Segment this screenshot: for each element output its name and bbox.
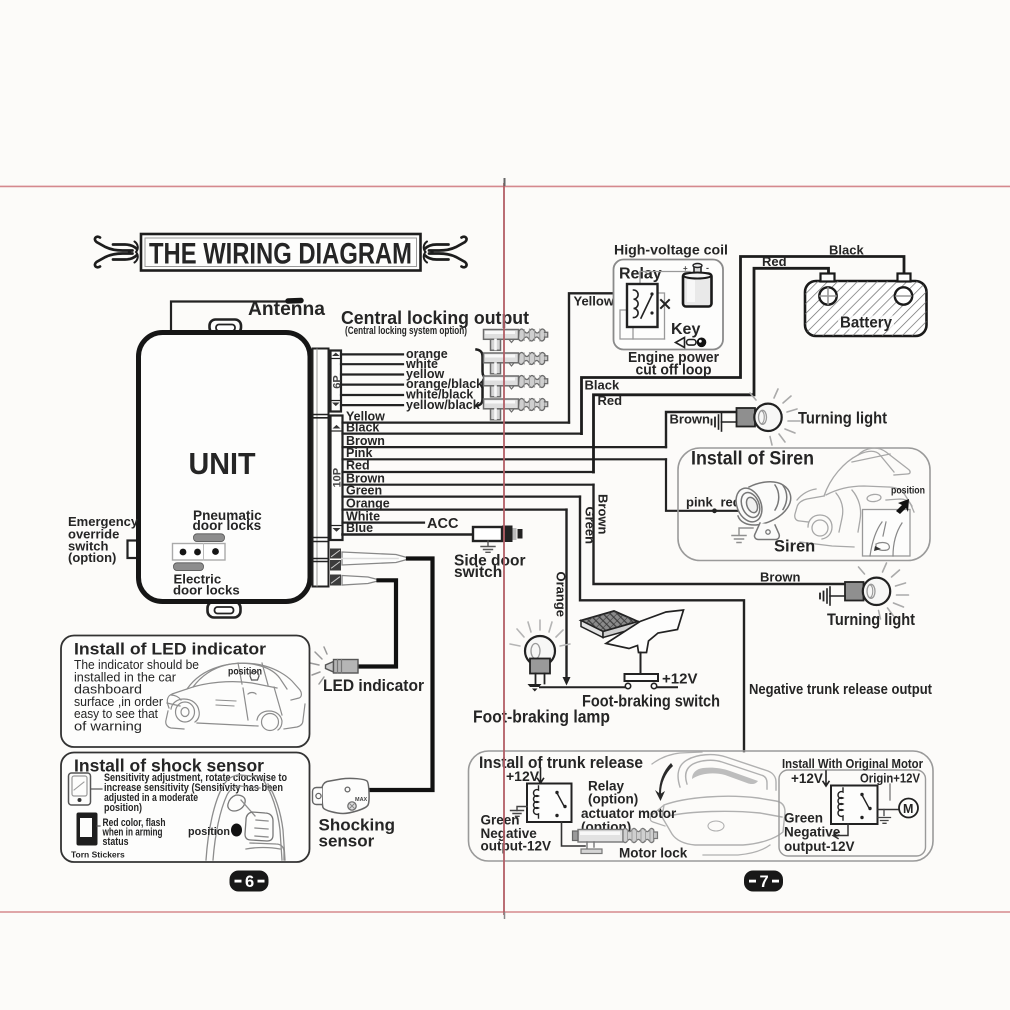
svg-text:Torn Stickers: Torn Stickers — [71, 850, 125, 860]
svg-text:switch: switch — [454, 564, 502, 581]
svg-text:output-12V: output-12V — [784, 839, 855, 854]
svg-text:ACC: ACC — [427, 516, 459, 532]
svg-text:yellow/black: yellow/black — [406, 398, 480, 412]
svg-text:Negative: Negative — [784, 825, 841, 840]
svg-text:Yellow: Yellow — [574, 294, 615, 309]
svg-text:Orange: Orange — [346, 496, 390, 510]
svg-text:Black: Black — [346, 420, 379, 434]
svg-text:7: 7 — [760, 873, 769, 891]
svg-text:UNIT: UNIT — [189, 446, 256, 481]
svg-text:(option): (option) — [588, 792, 638, 807]
svg-text:status: status — [103, 836, 129, 848]
svg-text:Install of Siren: Install of Siren — [691, 449, 814, 470]
svg-text:position: position — [188, 826, 230, 838]
svg-text:High-voltage coil: High-voltage coil — [614, 243, 728, 258]
svg-text:position: position — [891, 486, 925, 497]
svg-text:Blue: Blue — [346, 521, 373, 535]
svg-text:6: 6 — [245, 873, 254, 891]
svg-text:Motor lock: Motor lock — [619, 846, 688, 861]
svg-text:(Central locking system option: (Central locking system option) — [345, 325, 467, 337]
svg-text:Key: Key — [671, 321, 700, 338]
svg-text:sensor: sensor — [319, 832, 375, 851]
svg-text:Green: Green — [583, 507, 598, 545]
svg-text:Green: Green — [784, 811, 823, 826]
svg-text:(option): (option) — [68, 550, 116, 565]
svg-text:output-12V: output-12V — [481, 839, 552, 854]
svg-text:door locks: door locks — [193, 518, 262, 533]
svg-text:Black: Black — [585, 378, 620, 393]
svg-text:-: - — [706, 263, 709, 273]
svg-text:Red: Red — [598, 393, 623, 408]
svg-text:Antenna: Antenna — [248, 299, 325, 320]
svg-text:Red: Red — [762, 254, 787, 269]
svg-text:Black: Black — [829, 243, 864, 258]
svg-text:pink: pink — [686, 495, 713, 510]
svg-text:THE WIRING DIAGRAM: THE WIRING DIAGRAM — [149, 238, 412, 271]
svg-text:LED indicator: LED indicator — [323, 676, 424, 695]
svg-text:Foot-braking lamp: Foot-braking lamp — [473, 707, 610, 727]
svg-text:MAX: MAX — [355, 797, 368, 803]
svg-text:Brown: Brown — [760, 570, 801, 585]
svg-text:6P: 6P — [331, 375, 343, 388]
svg-text:+12V: +12V — [662, 671, 697, 688]
svg-text:Negative trunk release output: Negative trunk release output — [749, 682, 932, 698]
svg-text:Turning light: Turning light — [798, 409, 887, 428]
svg-text:+12V: +12V — [791, 771, 823, 786]
svg-text:Turning light: Turning light — [827, 610, 915, 629]
svg-text:Install of LED indicator: Install of LED indicator — [74, 640, 266, 659]
svg-text:Install With Original Motor: Install With Original Motor — [782, 756, 923, 771]
svg-text:door locks: door locks — [173, 582, 240, 597]
svg-text:+12V: +12V — [506, 768, 540, 784]
svg-text:Green: Green — [346, 483, 382, 497]
svg-text:cut off loop: cut off loop — [636, 361, 712, 378]
svg-text:+: + — [683, 264, 688, 273]
svg-text:of warning: of warning — [74, 720, 142, 734]
svg-text:Orange: Orange — [554, 572, 569, 618]
svg-text:Battery: Battery — [840, 315, 892, 332]
svg-text:M: M — [903, 802, 913, 816]
svg-text:Siren: Siren — [774, 538, 815, 556]
svg-text:position): position) — [104, 802, 142, 814]
svg-text:Brown: Brown — [670, 412, 711, 427]
